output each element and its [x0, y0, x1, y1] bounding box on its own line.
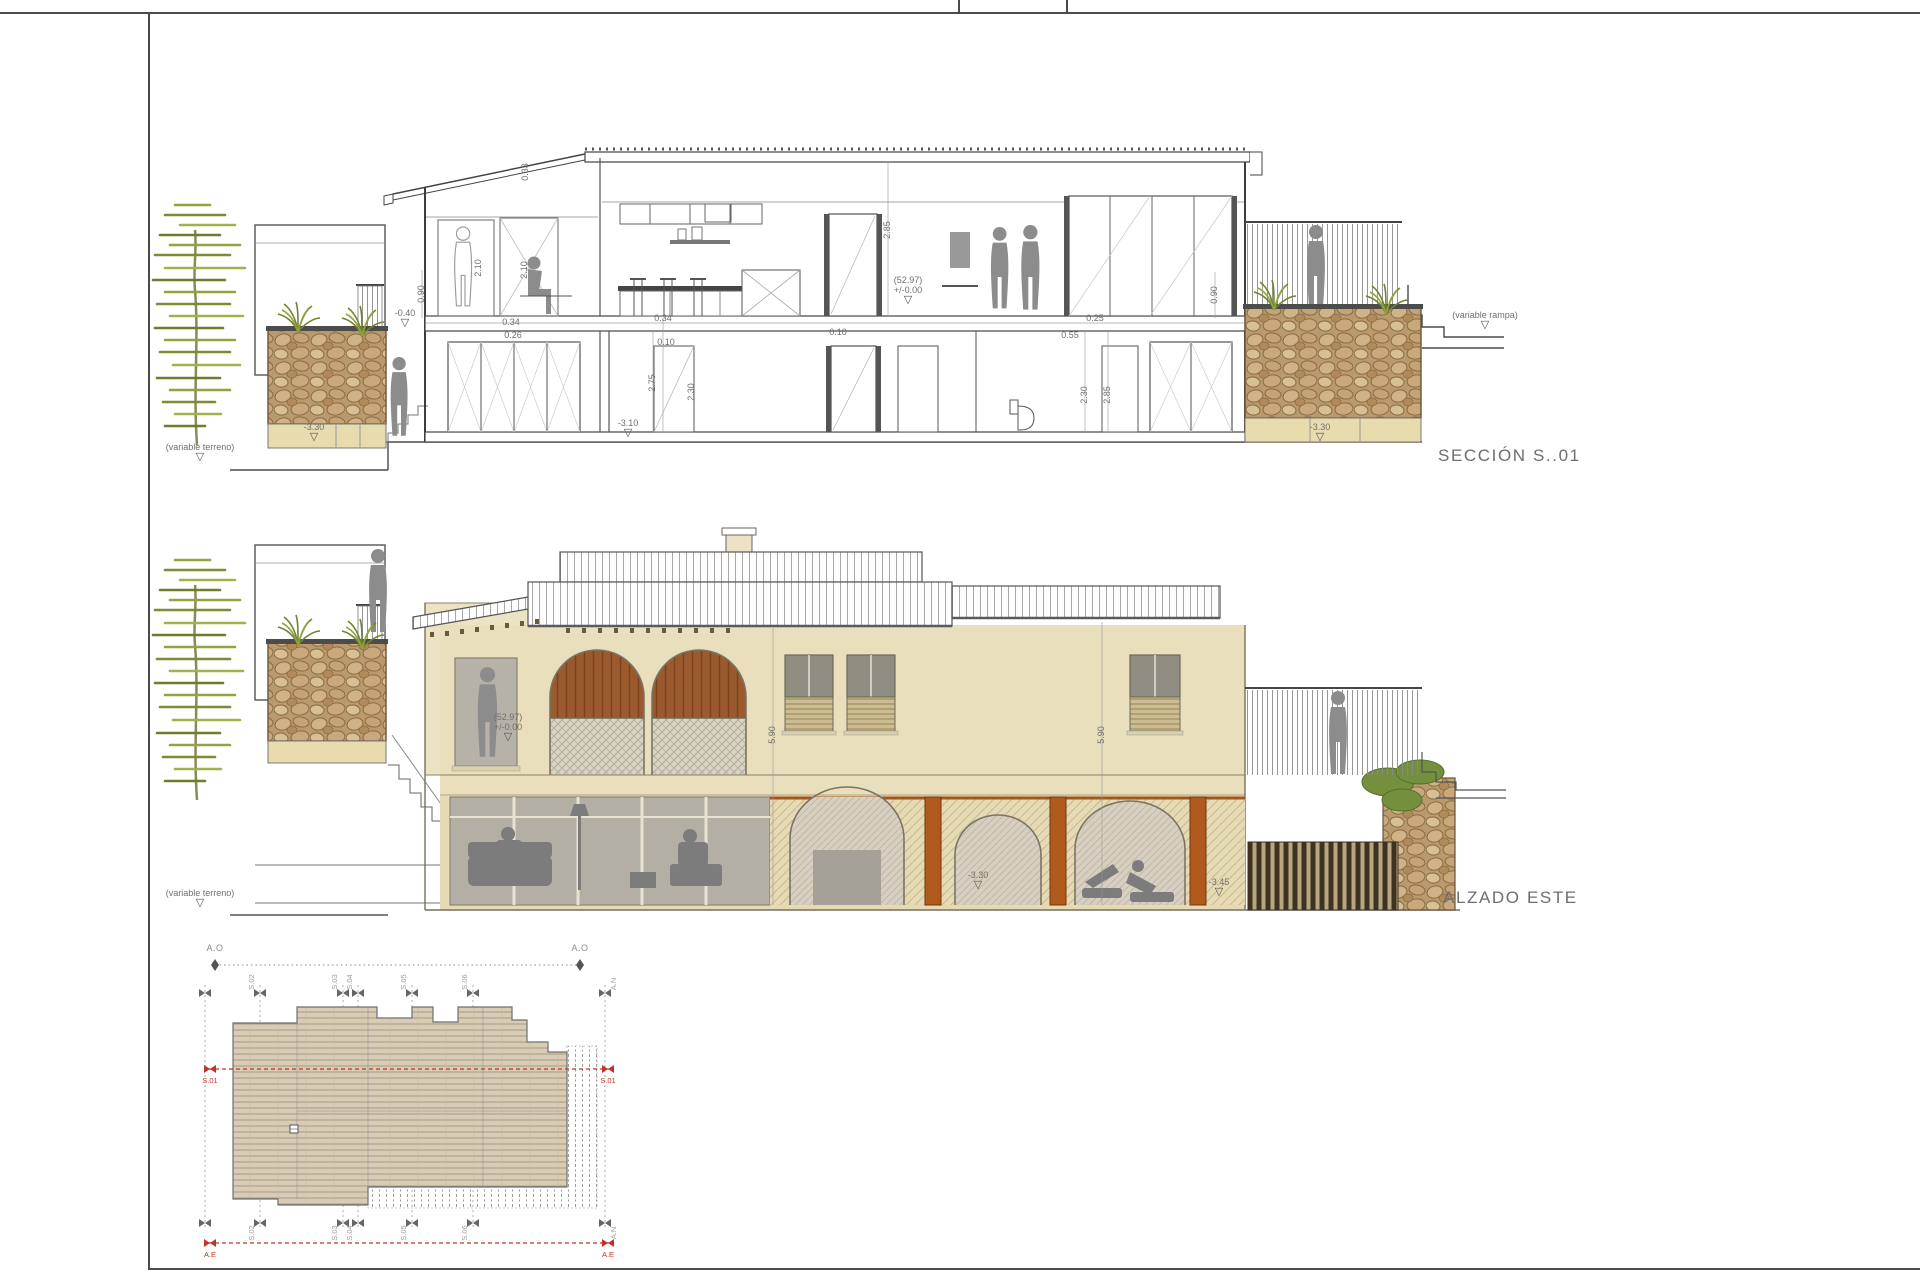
east-elevation-drawing: (52.97)+/-0.00▽-3.30▽-3.45▽(variable ter… [130, 520, 1570, 940]
section-linework [130, 80, 1570, 500]
elevation-linework [130, 520, 1570, 940]
roof-plan-drawing: A.OA.OS.02S.03S.04S.05S.06A.NS.02S.03S.0… [180, 935, 640, 1275]
plan-linework [180, 935, 640, 1275]
fold-tick [958, 0, 960, 12]
drawing-sheet: -0.40▽0.340.260.340.100.100.250.550.902.… [0, 0, 1920, 1280]
section-s01-drawing: -0.40▽0.340.260.340.100.100.250.550.902.… [130, 80, 1570, 500]
elevation-title: ALZADO ESTE [1443, 888, 1578, 908]
sheet-border-top [0, 12, 1920, 14]
section-title: SECCIÓN S..01 [1438, 446, 1581, 466]
fold-tick [1066, 0, 1068, 12]
